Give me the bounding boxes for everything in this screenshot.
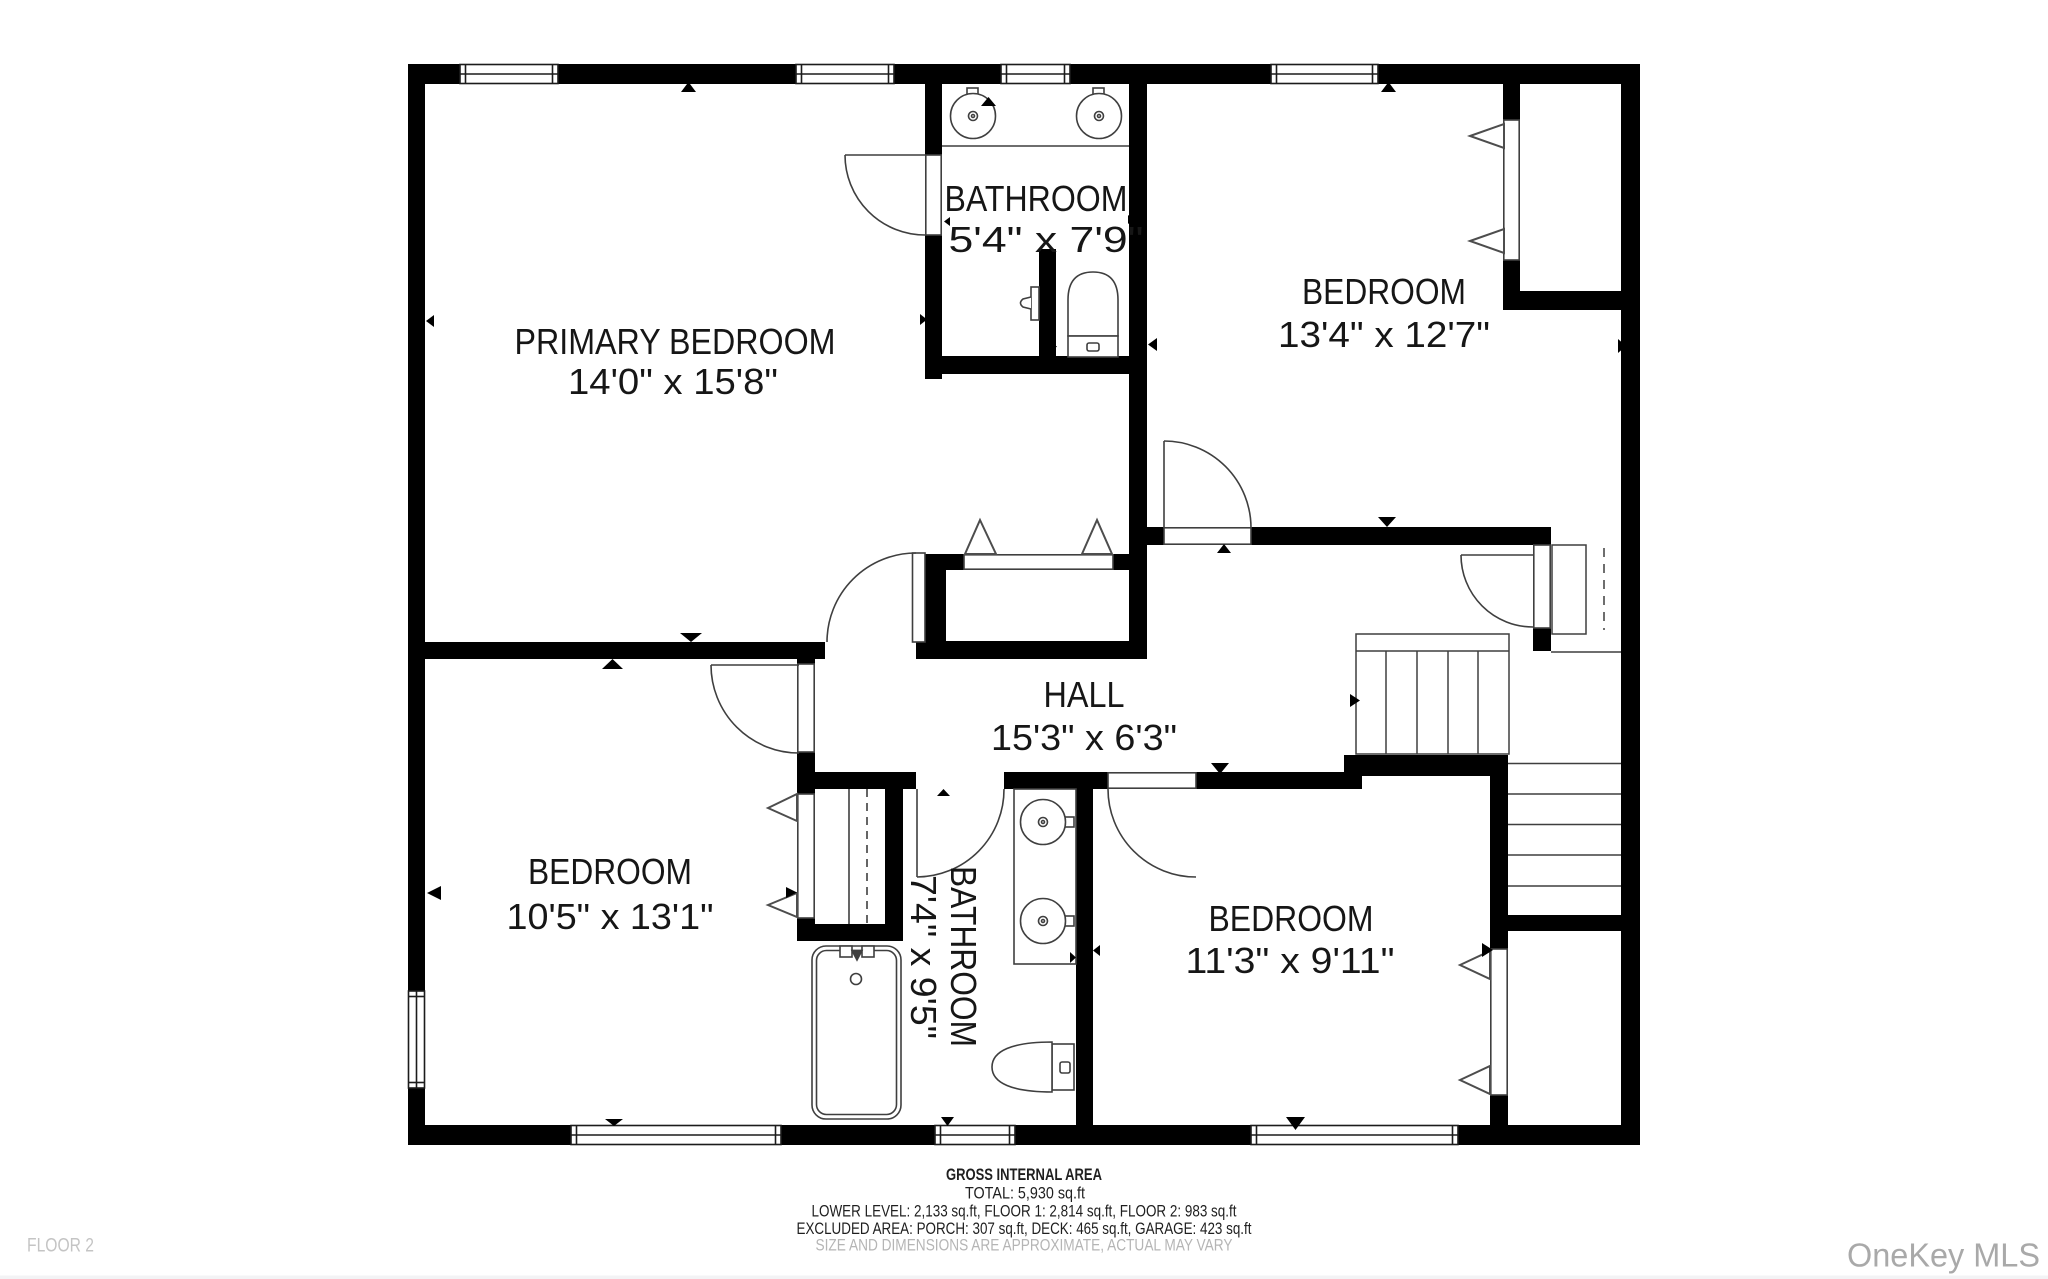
svg-text:GROSS INTERNAL AREA: GROSS INTERNAL AREA [946, 1165, 1102, 1184]
svg-text:PRIMARY BEDROOM: PRIMARY BEDROOM [515, 321, 836, 362]
svg-text:BEDROOM: BEDROOM [1209, 898, 1374, 939]
svg-text:15'3" x 6'3": 15'3" x 6'3" [991, 717, 1177, 758]
svg-text:BATHROOM: BATHROOM [943, 866, 984, 1047]
svg-text:FLOOR 2: FLOOR 2 [27, 1236, 94, 1257]
svg-text:BEDROOM: BEDROOM [528, 851, 692, 892]
svg-text:13'4" x 12'7": 13'4" x 12'7" [1278, 314, 1490, 355]
svg-text:BEDROOM: BEDROOM [1302, 271, 1466, 312]
svg-text:SIZE AND DIMENSIONS ARE APPROX: SIZE AND DIMENSIONS ARE APPROXIMATE, ACT… [816, 1236, 1233, 1255]
svg-text:7'4" x 9'5": 7'4" x 9'5" [903, 875, 944, 1039]
svg-text:14'0" x 15'8": 14'0" x 15'8" [568, 361, 778, 402]
svg-text:5'4" x 7'9": 5'4" x 7'9" [949, 219, 1144, 260]
svg-text:OneKey MLS: OneKey MLS [1847, 1237, 2040, 1274]
svg-text:LOWER LEVEL: 2,133 sq.ft, FLOO: LOWER LEVEL: 2,133 sq.ft, FLOOR 1: 2,814… [812, 1202, 1237, 1221]
svg-text:11'3" x 9'11": 11'3" x 9'11" [1186, 940, 1395, 981]
svg-text:10'5" x 13'1": 10'5" x 13'1" [507, 896, 714, 937]
svg-text:HALL: HALL [1044, 674, 1125, 715]
svg-text:TOTAL: 5,930 sq.ft: TOTAL: 5,930 sq.ft [965, 1184, 1085, 1203]
svg-text:BATHROOM: BATHROOM [945, 178, 1128, 219]
